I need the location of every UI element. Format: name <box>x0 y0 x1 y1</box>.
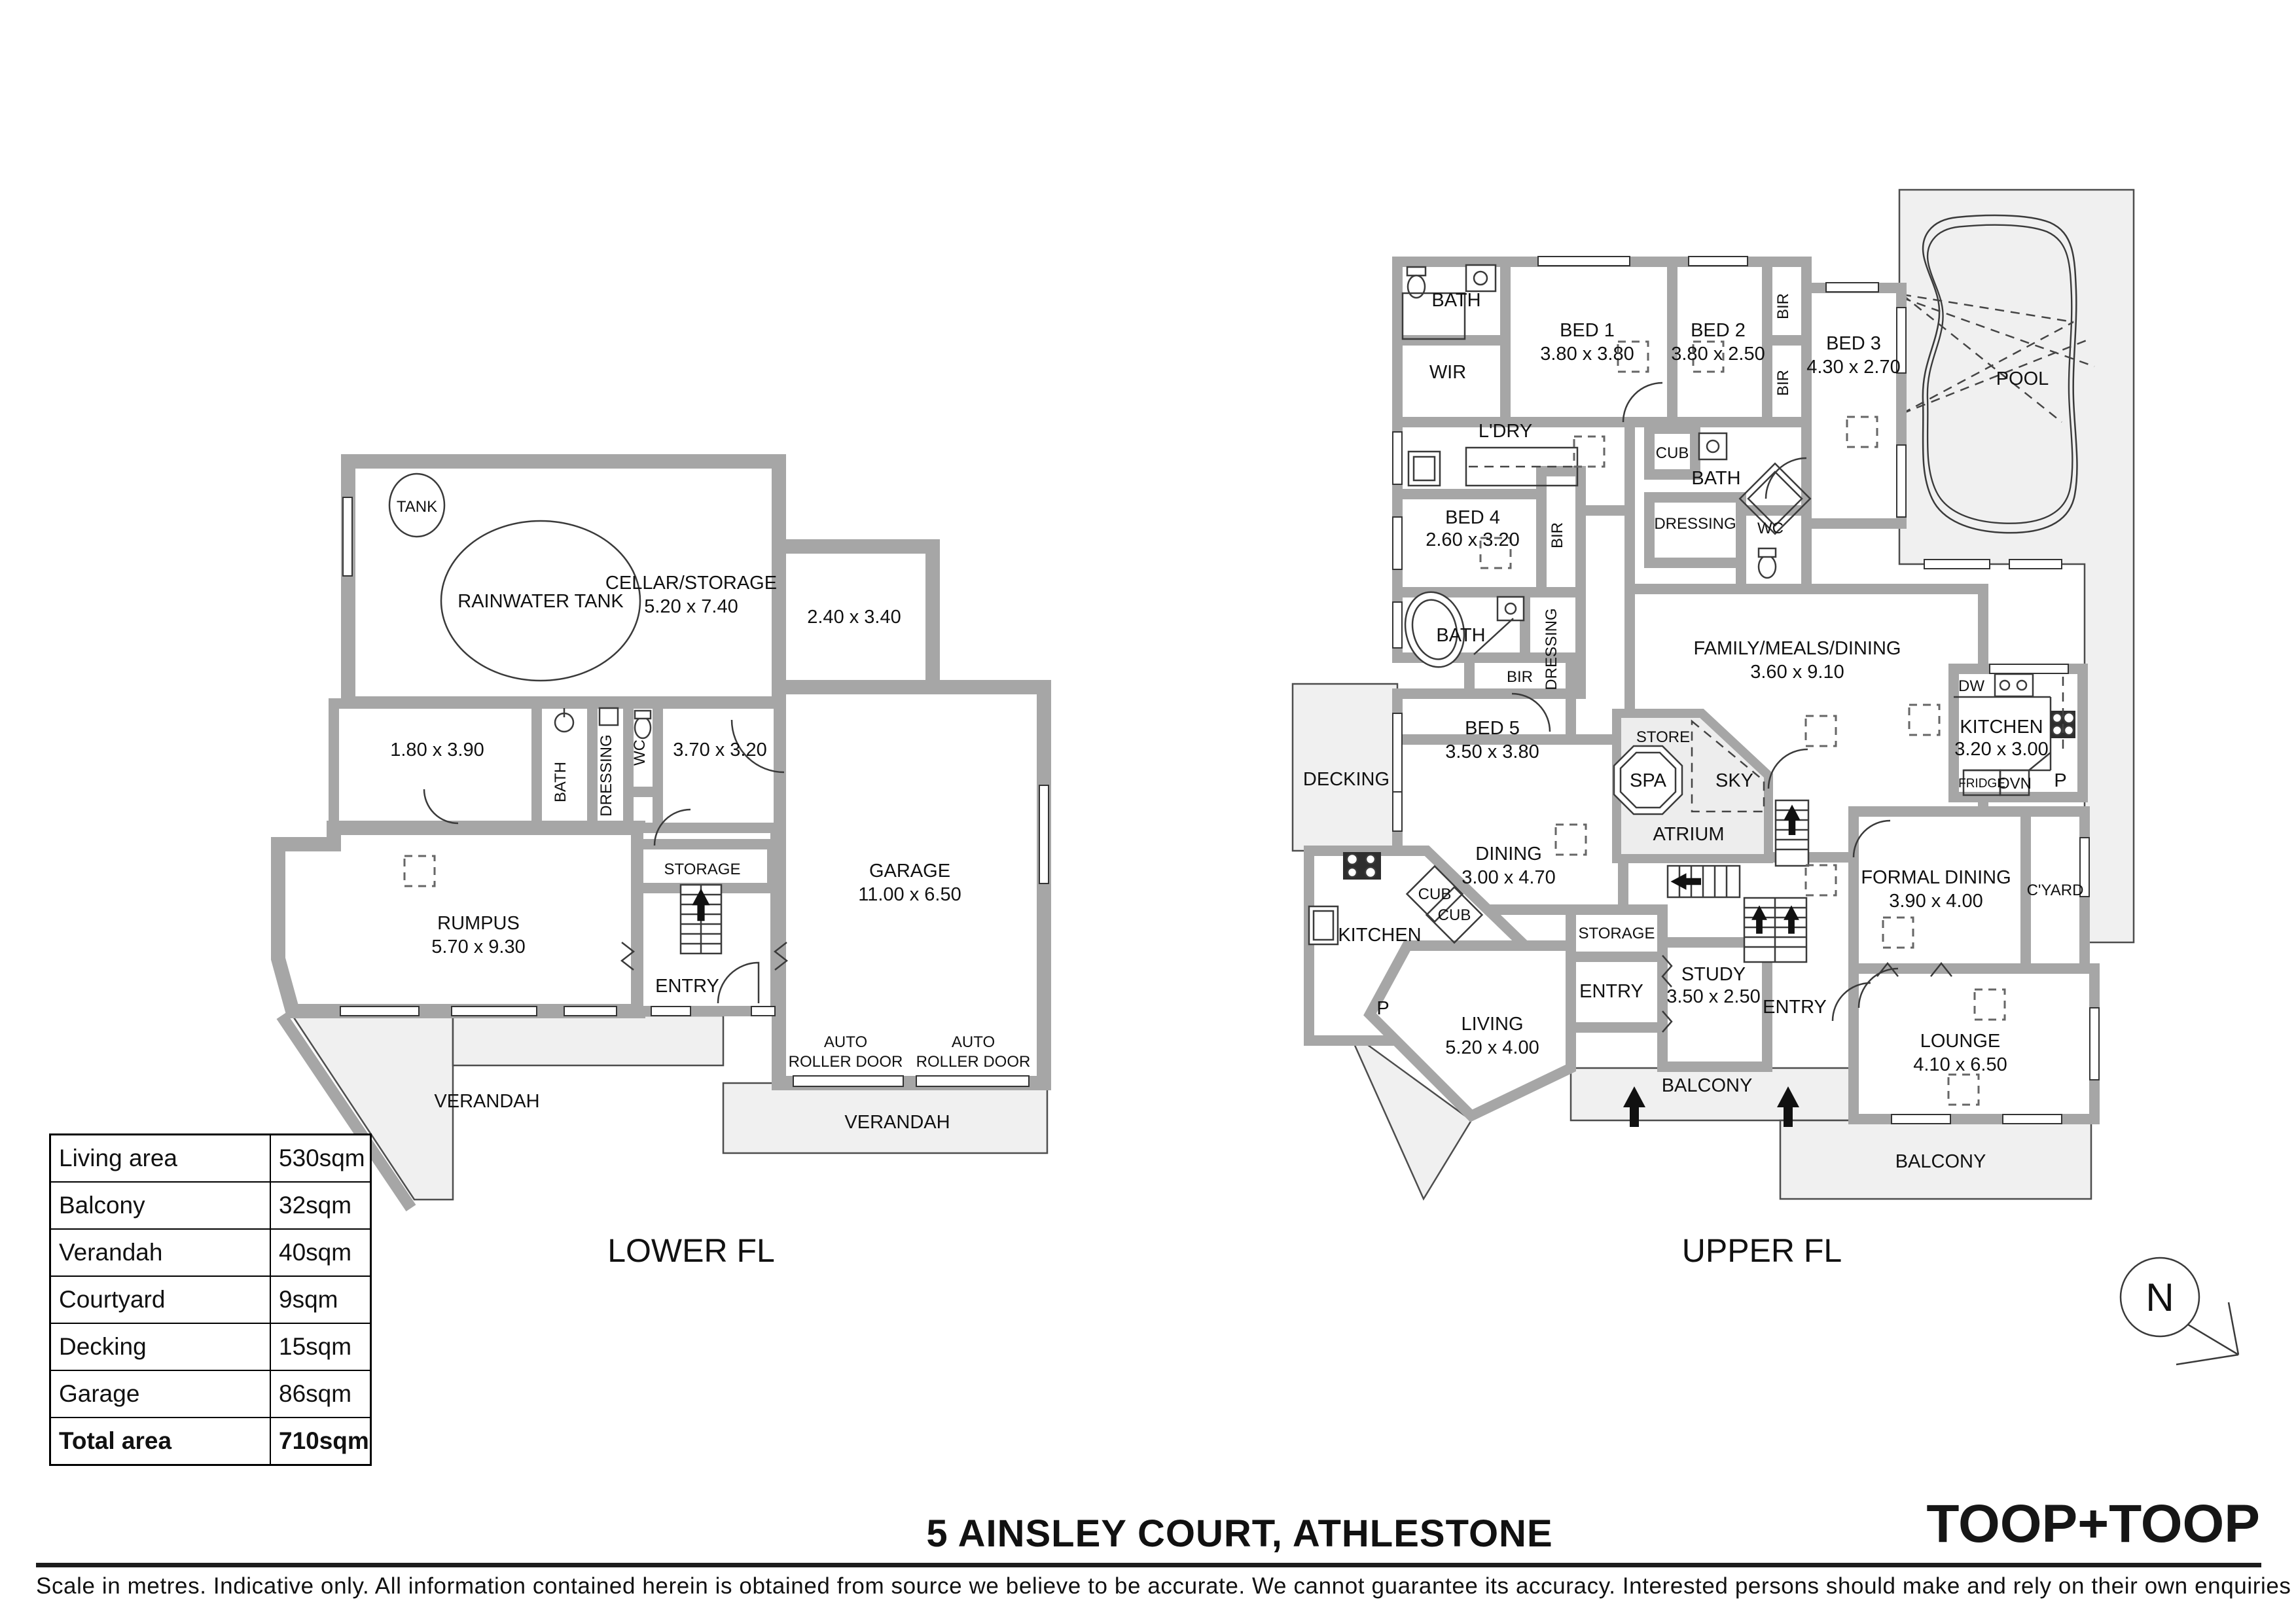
area-value: 86sqm <box>271 1371 370 1417</box>
label-pool: POOL <box>1996 368 2049 389</box>
label-living: LIVING <box>1461 1014 1523 1035</box>
area-value: 32sqm <box>271 1183 370 1228</box>
label-bed1: BED 1 <box>1560 320 1615 341</box>
label-family-dims: 3.60 x 9.10 <box>1750 662 1844 683</box>
label-bed3-dims: 4.30 x 2.70 <box>1806 357 1901 378</box>
window <box>343 497 352 576</box>
label-pantry-left: P <box>1376 998 1389 1019</box>
label-room-370: 3.70 x 3.20 <box>673 740 767 760</box>
upper-floorplan: BATH WIR BED 1 3.80 x 3.80 BED 2 3.80 x … <box>1293 190 2134 1269</box>
label-kitchen-left: KITCHEN <box>1338 925 1421 946</box>
label-formal-dining: FORMAL DINING <box>1861 867 2011 888</box>
area-table: Living area 530sqm Balcony 32sqm Veranda… <box>49 1133 372 1466</box>
label-cub2: CUB <box>1438 906 1471 924</box>
label-kitchen-right-dims: 3.20 x 3.00 <box>1954 739 2049 760</box>
label-cyard: C'YARD <box>2027 882 2084 899</box>
label-family: FAMILY/MEALS/DINING <box>1694 638 1901 659</box>
window <box>2009 560 2062 569</box>
floorplan-page: TANK RAINWATER TANK CELLAR/STORAGE 5.20 … <box>0 0 2296 1623</box>
label-storage-lower: STORAGE <box>664 861 741 878</box>
table-row: Decking 15sqm <box>51 1323 370 1370</box>
label-entry-lower: ENTRY <box>655 976 719 997</box>
table-row: Garage 86sqm <box>51 1370 370 1417</box>
window <box>1039 785 1049 883</box>
window <box>1990 664 2068 673</box>
label-bir-a: BIR <box>1774 293 1792 319</box>
label-lounge-dims: 4.10 x 6.50 <box>1913 1054 2007 1075</box>
table-row: Living area 530sqm <box>51 1135 370 1181</box>
property-address: 5 AINSLEY COURT, ATHLESTONE <box>926 1512 1552 1556</box>
room-formal-dining <box>1854 811 2026 969</box>
label-roller2-line2: ROLLER DOOR <box>916 1053 1031 1071</box>
window <box>1689 257 1748 266</box>
label-living-dims: 5.20 x 4.00 <box>1445 1037 1539 1058</box>
label-roller1-line2: ROLLER DOOR <box>789 1053 903 1071</box>
label-bed4-dims: 2.60 x 3.20 <box>1426 529 1520 550</box>
label-decking: DECKING <box>1303 769 1390 790</box>
ceiling-feature <box>1806 865 1836 895</box>
label-store: STORE <box>1636 728 1690 746</box>
label-bath-lower: BATH <box>552 762 569 802</box>
label-bed4: BED 4 <box>1445 507 1500 528</box>
lower-floorplan: TANK RAINWATER TANK CELLAR/STORAGE 5.20 … <box>278 461 1049 1269</box>
window <box>1897 445 1906 517</box>
window <box>1538 257 1630 266</box>
label-rainwater-tank: RAINWATER TANK <box>457 591 624 612</box>
label-cellar-dims: 5.20 x 7.40 <box>644 596 738 617</box>
room-370 <box>658 704 779 828</box>
brand-logo: TOOP+TOOP <box>1926 1493 2260 1555</box>
window <box>1892 1115 1950 1124</box>
window <box>751 1007 775 1016</box>
verandah-entry-strip <box>453 1016 723 1065</box>
label-dressing-ll: DRESSING <box>1543 608 1560 690</box>
label-wir: WIR <box>1429 362 1466 383</box>
area-label: Garage <box>51 1371 271 1417</box>
label-balcony-bottom: BALCONY <box>1895 1151 1986 1172</box>
label-ovn: OVN <box>1998 775 2032 793</box>
window <box>1826 283 1878 292</box>
area-label: Courtyard <box>51 1277 271 1323</box>
label-bed5-dims: 3.50 x 3.80 <box>1445 741 1539 762</box>
upper-floor-title: UPPER FL <box>1682 1232 1842 1269</box>
label-rumpus: RUMPUS <box>437 913 520 934</box>
room-bed3 <box>1806 288 1901 524</box>
window <box>2090 1008 2099 1080</box>
label-bath-mid: BATH <box>1691 468 1740 489</box>
label-dressing-lower: DRESSING <box>598 734 615 816</box>
area-label: Verandah <box>51 1230 271 1275</box>
label-wc-lower: WC <box>631 740 649 766</box>
label-tank: TANK <box>397 498 437 516</box>
label-storage-upper: STORAGE <box>1579 925 1655 942</box>
window <box>1924 560 1990 569</box>
label-bath-ll: BATH <box>1436 625 1485 646</box>
label-study-dims: 3.50 x 2.50 <box>1666 986 1761 1007</box>
label-bed3: BED 3 <box>1826 333 1881 354</box>
label-bed2-dims: 3.80 x 2.50 <box>1671 344 1765 365</box>
label-roller1-line1: AUTO <box>824 1033 867 1051</box>
area-value: 530sqm <box>271 1135 370 1181</box>
label-bed2: BED 2 <box>1691 320 1746 341</box>
label-room-180: 1.80 x 3.90 <box>390 740 484 760</box>
label-dining-dims: 3.00 x 4.70 <box>1462 867 1556 888</box>
window <box>651 1007 691 1016</box>
window <box>2003 1115 2062 1124</box>
window <box>1393 432 1402 484</box>
label-dressing-mid: DRESSING <box>1654 515 1736 533</box>
window <box>1393 517 1402 569</box>
label-bir-d: BIR <box>1507 668 1533 686</box>
area-label: Balcony <box>51 1183 271 1228</box>
label-spa: SPA <box>1630 770 1667 791</box>
table-row: Verandah 40sqm <box>51 1228 370 1275</box>
label-ldry: L'DRY <box>1479 421 1532 442</box>
label-verandah-left: VERANDAH <box>434 1091 539 1112</box>
toilet-icon <box>635 717 651 738</box>
label-dining: DINING <box>1475 844 1542 865</box>
table-row: Balcony 32sqm <box>51 1181 370 1228</box>
area-value: 710sqm <box>271 1418 370 1464</box>
label-bath-tl: BATH <box>1431 290 1480 311</box>
decking-area <box>1293 684 1397 851</box>
north-arrow: N <box>2121 1258 2238 1364</box>
label-roller2-line1: AUTO <box>952 1033 995 1051</box>
label-entry-left: ENTRY <box>1579 981 1643 1002</box>
table-row: Courtyard 9sqm <box>51 1275 370 1323</box>
label-kitchen-right: KITCHEN <box>1960 717 2043 738</box>
window <box>340 1007 419 1016</box>
label-cellar: CELLAR/STORAGE <box>605 573 777 594</box>
label-atrium: ATRIUM <box>1653 824 1724 845</box>
lower-floor-title: LOWER FL <box>607 1232 775 1269</box>
north-label: N <box>2145 1275 2174 1319</box>
label-study: STUDY <box>1681 964 1746 985</box>
label-garage: GARAGE <box>869 861 950 882</box>
label-room-240: 2.40 x 3.40 <box>807 607 901 628</box>
window <box>564 1007 617 1016</box>
stairs-upper-c <box>1744 898 1806 962</box>
label-garage-dims: 11.00 x 6.50 <box>858 884 961 905</box>
label-bir-b: BIR <box>1774 370 1792 396</box>
room-180 <box>334 704 537 828</box>
roller-door-2 <box>916 1076 1029 1086</box>
area-value: 15sqm <box>271 1324 370 1370</box>
table-row-total: Total area 710sqm <box>51 1417 370 1464</box>
label-sky: SKY <box>1715 770 1753 791</box>
label-verandah-right: VERANDAH <box>844 1112 950 1133</box>
label-entry-right: ENTRY <box>1763 997 1827 1018</box>
area-value: 9sqm <box>271 1277 370 1323</box>
label-balcony-mid: BALCONY <box>1662 1075 1753 1096</box>
area-label: Living area <box>51 1135 271 1181</box>
footer-rule <box>36 1563 2261 1567</box>
disclaimer-text: Scale in metres. Indicative only. All in… <box>36 1573 2261 1599</box>
label-pantry-right: P <box>2054 770 2066 791</box>
label-wc-mid: WC <box>1757 520 1784 537</box>
label-rumpus-dims: 5.70 x 9.30 <box>431 936 526 957</box>
label-dw: DW <box>1958 677 1984 695</box>
window <box>1393 602 1402 648</box>
window <box>1393 713 1402 792</box>
area-label: Total area <box>51 1418 271 1464</box>
label-bed5: BED 5 <box>1465 718 1520 739</box>
label-formal-dining-dims: 3.90 x 4.00 <box>1889 891 1983 912</box>
label-cub1: CUB <box>1418 885 1452 903</box>
sink-icon <box>600 708 618 725</box>
label-bir-c: BIR <box>1549 522 1566 548</box>
window <box>452 1007 537 1016</box>
area-value: 40sqm <box>271 1230 370 1275</box>
label-lounge: LOUNGE <box>1920 1031 2000 1052</box>
room-bed2 <box>1672 262 1767 422</box>
roller-door-1 <box>793 1076 903 1086</box>
label-cub-mid: CUB <box>1656 444 1689 462</box>
label-bed1-dims: 3.80 x 3.80 <box>1540 344 1634 365</box>
area-label: Decking <box>51 1324 271 1370</box>
